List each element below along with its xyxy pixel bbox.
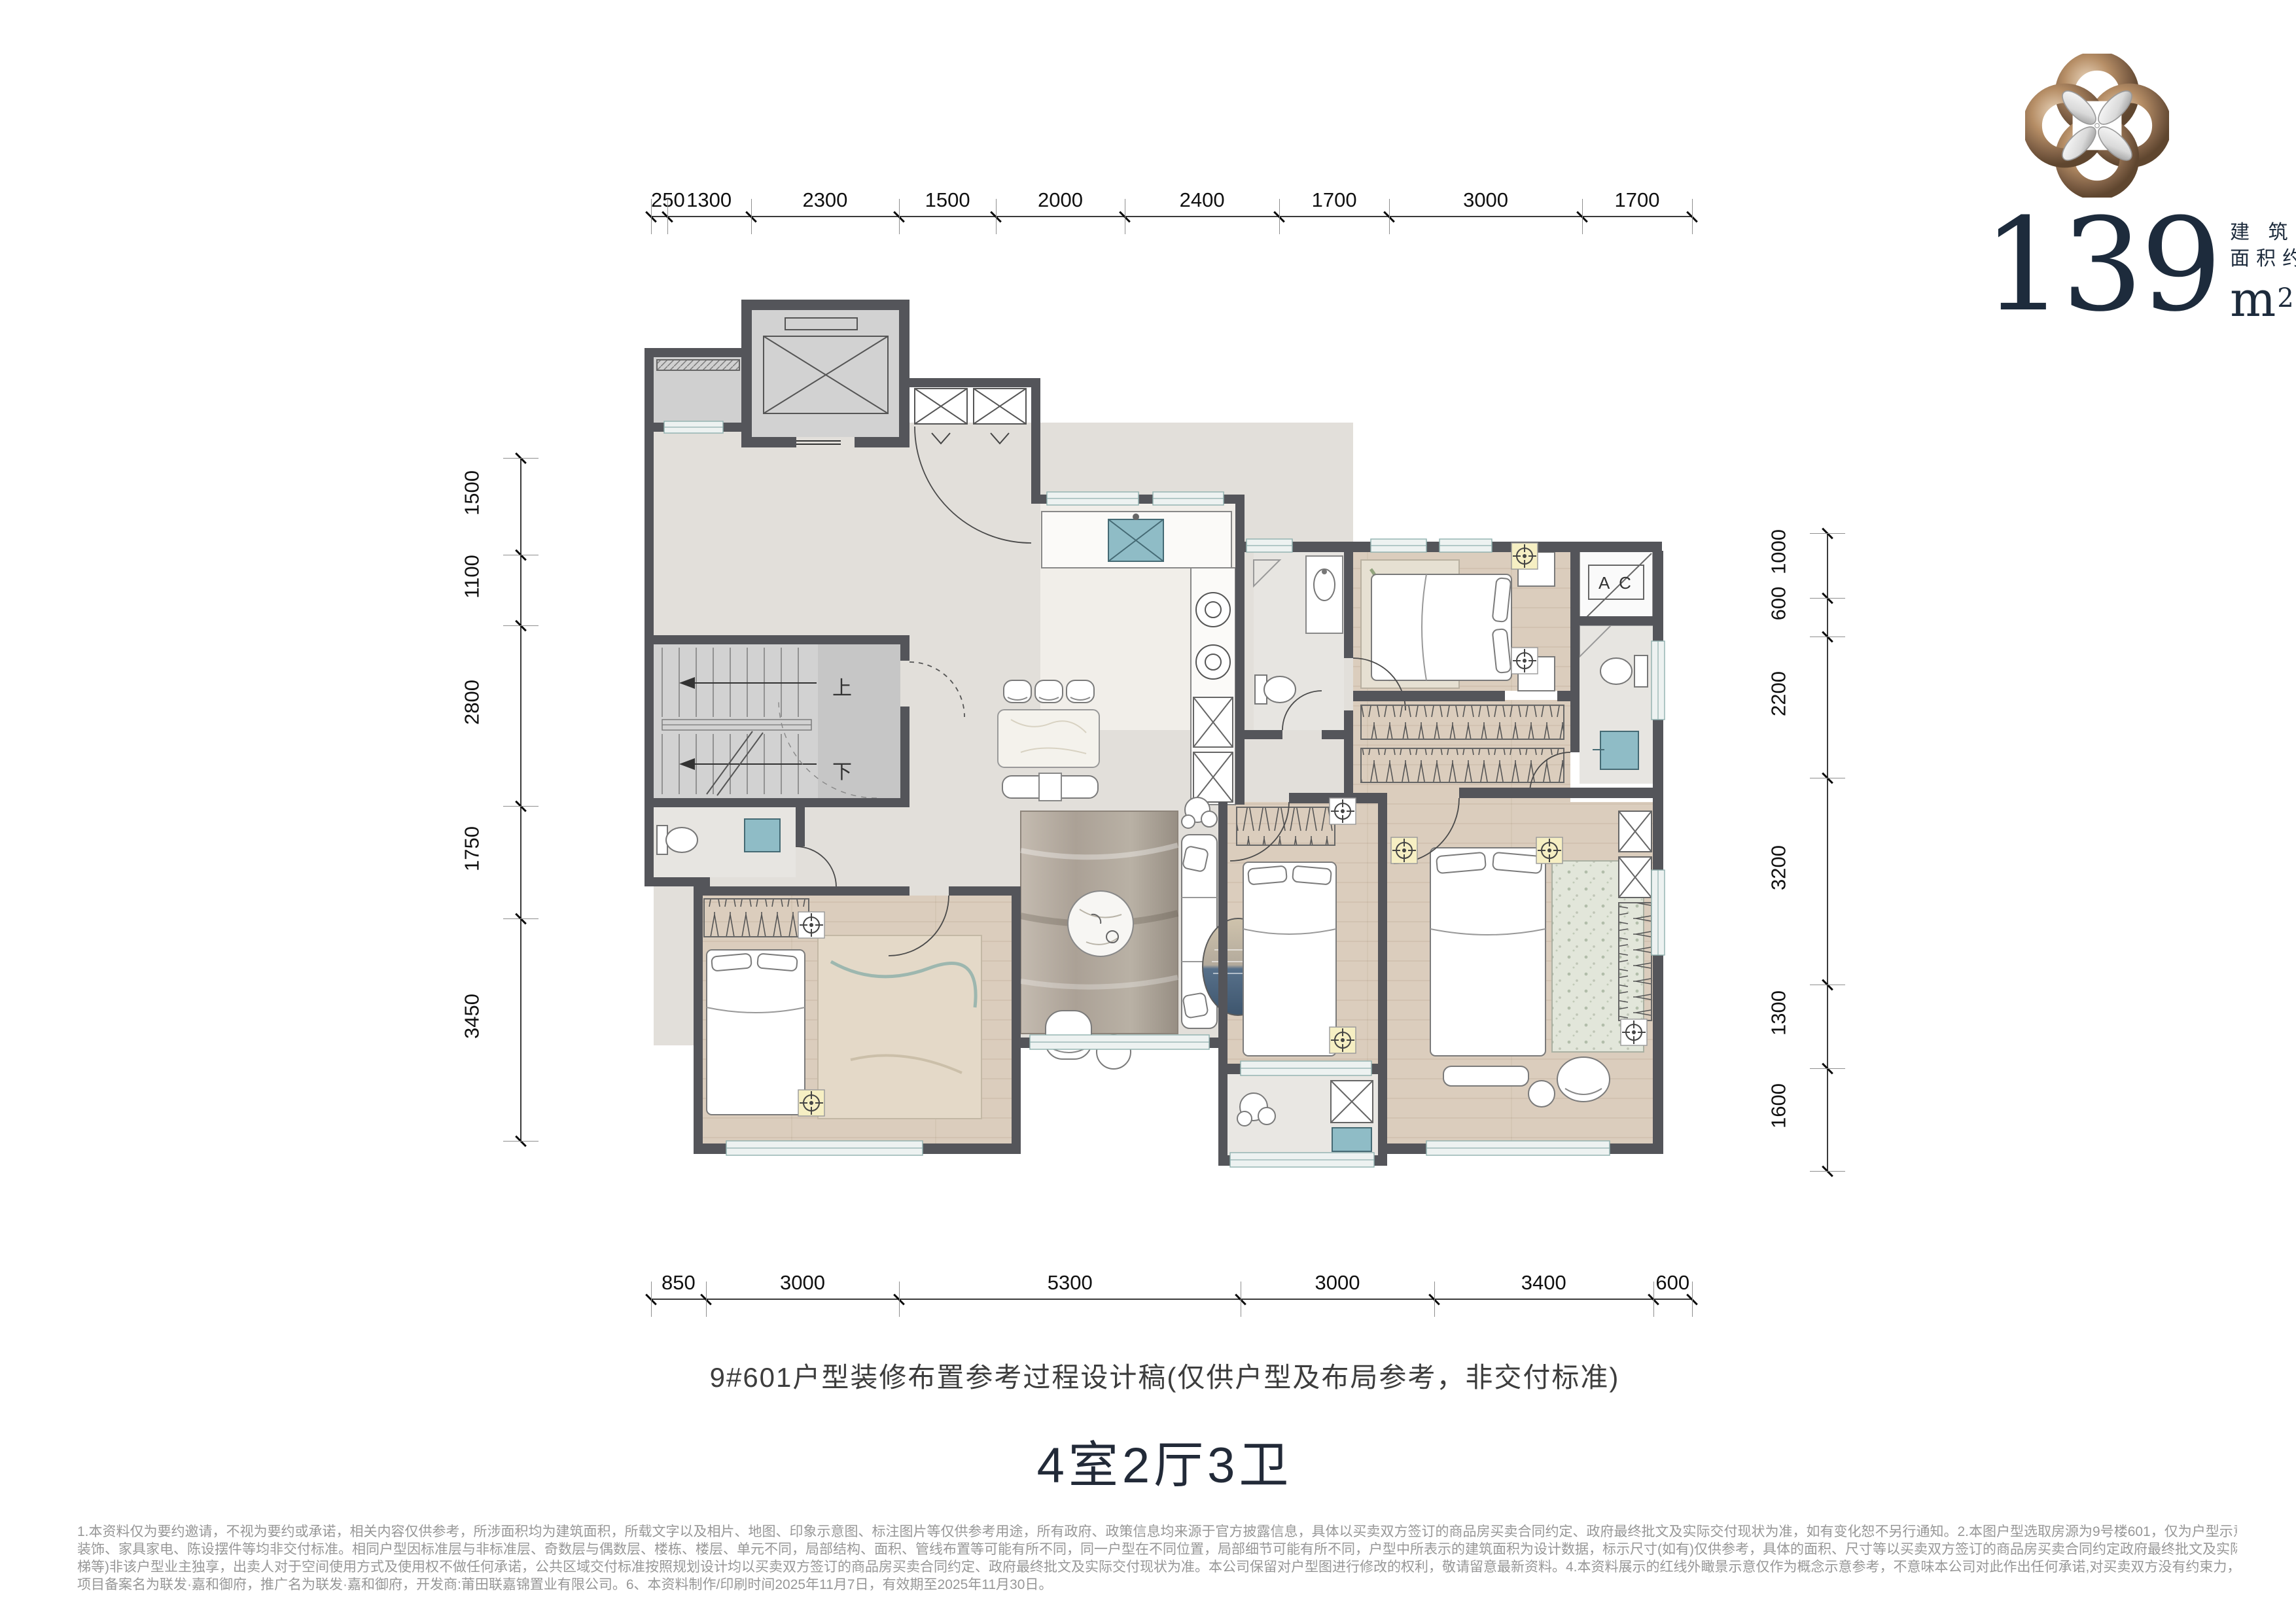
disclaimer-line-4: 项目备案名为联发·嘉和御府，推广名为联发·嘉和御府，开发商:莆田联嘉锦置业有限公… xyxy=(77,1576,2237,1594)
lamp-target-icon xyxy=(798,1090,824,1116)
stairs-up-label: 上 xyxy=(832,678,852,699)
dim-value: 1300 xyxy=(667,188,751,212)
lamp-target-icon xyxy=(1330,798,1356,824)
lamp-target-icon xyxy=(1511,648,1538,674)
dim-value: 2000 xyxy=(996,188,1125,212)
dim-value: 600 xyxy=(1767,574,1791,663)
stairs-down-label: 下 xyxy=(832,761,852,783)
ac-label: A C xyxy=(1598,573,1634,593)
dim-value: 1600 xyxy=(1767,1077,1791,1165)
dim-value: 2400 xyxy=(1125,188,1279,212)
dim-value: 1500 xyxy=(461,463,484,551)
dim-value: 1300 xyxy=(1767,983,1791,1072)
lamp-target-icon xyxy=(1536,837,1563,864)
living-room xyxy=(1021,797,1217,1069)
dim-value: 3000 xyxy=(1389,188,1583,212)
elevator xyxy=(752,310,899,444)
dim-value: 3000 xyxy=(1241,1271,1434,1295)
dim-value: 5300 xyxy=(899,1271,1241,1295)
plan-caption: 9#601户型装修布置参考过程设计稿(仅供户型及布局参考，非交付标准) xyxy=(615,1355,1714,1395)
dim-value: 1750 xyxy=(461,820,484,908)
dim-value: 600 xyxy=(1653,1271,1692,1295)
lamp-target-icon xyxy=(1391,837,1417,864)
dim-value: 850 xyxy=(651,1271,706,1295)
disclaimer-line-1: 1.本资料仅为要约邀请，不视为要约或承诺，相关内容仅供参考，所涉面积均为建筑面积… xyxy=(77,1523,2237,1541)
lamp-target-icon xyxy=(1330,1027,1356,1053)
lamp-target-icon xyxy=(798,912,824,938)
ac-unit: A C xyxy=(1580,551,1653,625)
dim-value: 1500 xyxy=(899,188,996,212)
floorplan-page: 139 建 筑 面积约 m2 xyxy=(0,0,2296,1623)
dim-value: 3450 xyxy=(461,987,484,1075)
dim-value: 250 xyxy=(651,188,667,212)
kitchen-counter xyxy=(1042,512,1231,568)
lamp-target-icon xyxy=(1621,1019,1647,1045)
dim-value: 3000 xyxy=(706,1271,900,1295)
disclaimer-line-2: 装饰、家具家电、陈设摆件等均非交付标准。相同户型因标准层与非标准层、奇数层与偶数… xyxy=(77,1541,2237,1558)
dim-value: 1700 xyxy=(1279,188,1388,212)
dim-value: 2200 xyxy=(1767,664,1791,752)
unit-type-title: 4室2厅3卫 xyxy=(615,1425,1714,1497)
storage-room xyxy=(657,360,739,370)
disclaimer-line-3: 梯等)非该户型业主独享，出卖人对于空间使用方式及使用权不做任何承诺，公共区域交付… xyxy=(77,1558,2237,1576)
lamp-target-icon xyxy=(1511,543,1538,569)
dim-value: 3400 xyxy=(1434,1271,1653,1295)
dim-value: 1700 xyxy=(1582,188,1691,212)
dim-value: 2300 xyxy=(751,188,900,212)
dim-value: 3200 xyxy=(1767,838,1791,926)
dim-value: 2800 xyxy=(461,673,484,761)
dim-value: 1100 xyxy=(461,547,484,635)
cooktop-column xyxy=(1191,568,1235,805)
legal-disclaimer: 1.本资料仅为要约邀请，不视为要约或承诺，相关内容仅供参考，所涉面积均为建筑面积… xyxy=(77,1523,2237,1594)
dining-table xyxy=(998,680,1099,801)
